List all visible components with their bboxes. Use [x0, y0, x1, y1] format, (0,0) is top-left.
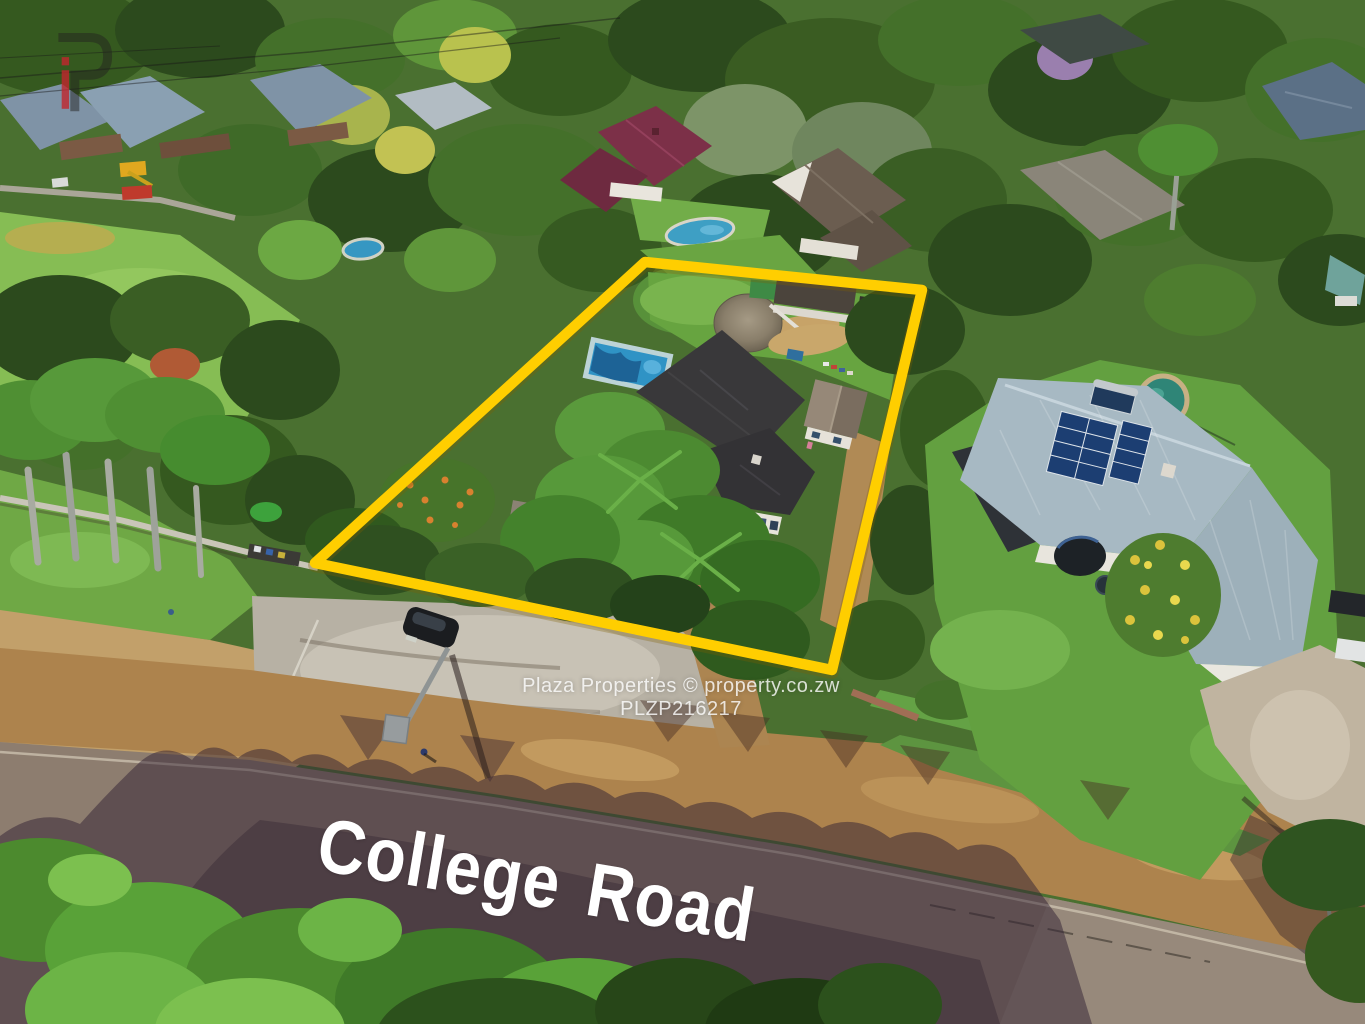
yellow-flower-tree	[1105, 533, 1221, 657]
watermark-line1: Plaza Properties © property.co.zw	[431, 675, 931, 698]
green-shade-net	[250, 502, 282, 522]
logo-accent-dot	[62, 57, 69, 65]
red-skip	[122, 185, 153, 200]
watermark: Plaza Properties © property.co.zw PLZP21…	[431, 675, 931, 721]
person-on-lawn	[168, 609, 174, 615]
plaza-properties-logo	[42, 30, 124, 122]
aerial-photo: Plaza Properties © property.co.zw PLZP21…	[0, 0, 1365, 1024]
road-sign	[382, 714, 409, 743]
logo-accent-bar	[62, 70, 69, 109]
watermark-line2: PLZP216217	[431, 698, 931, 721]
